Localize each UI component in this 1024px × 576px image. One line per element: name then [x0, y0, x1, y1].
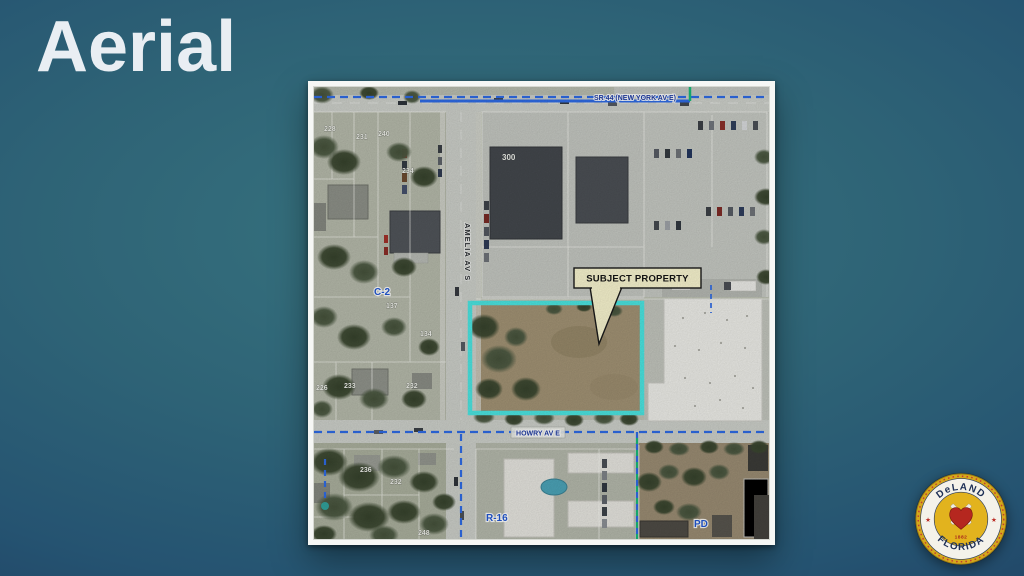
page-title: Aerial [36, 6, 236, 88]
aerial-map: SR 44 (NEW YORK AV E) AMELIA AV S HOWRY … [314, 87, 769, 539]
seal-year: 1882 [955, 534, 968, 540]
seal-star-left: ★ [925, 516, 931, 524]
seal-star-right: ★ [991, 516, 997, 524]
aerial-map-frame: SR 44 (NEW YORK AV E) AMELIA AV S HOWRY … [308, 81, 775, 545]
photo-grain [314, 87, 769, 539]
slide: Aerial [0, 0, 1024, 576]
deland-city-seal: DeLAND FLORIDA ★ ★ 1882 [914, 472, 1008, 566]
